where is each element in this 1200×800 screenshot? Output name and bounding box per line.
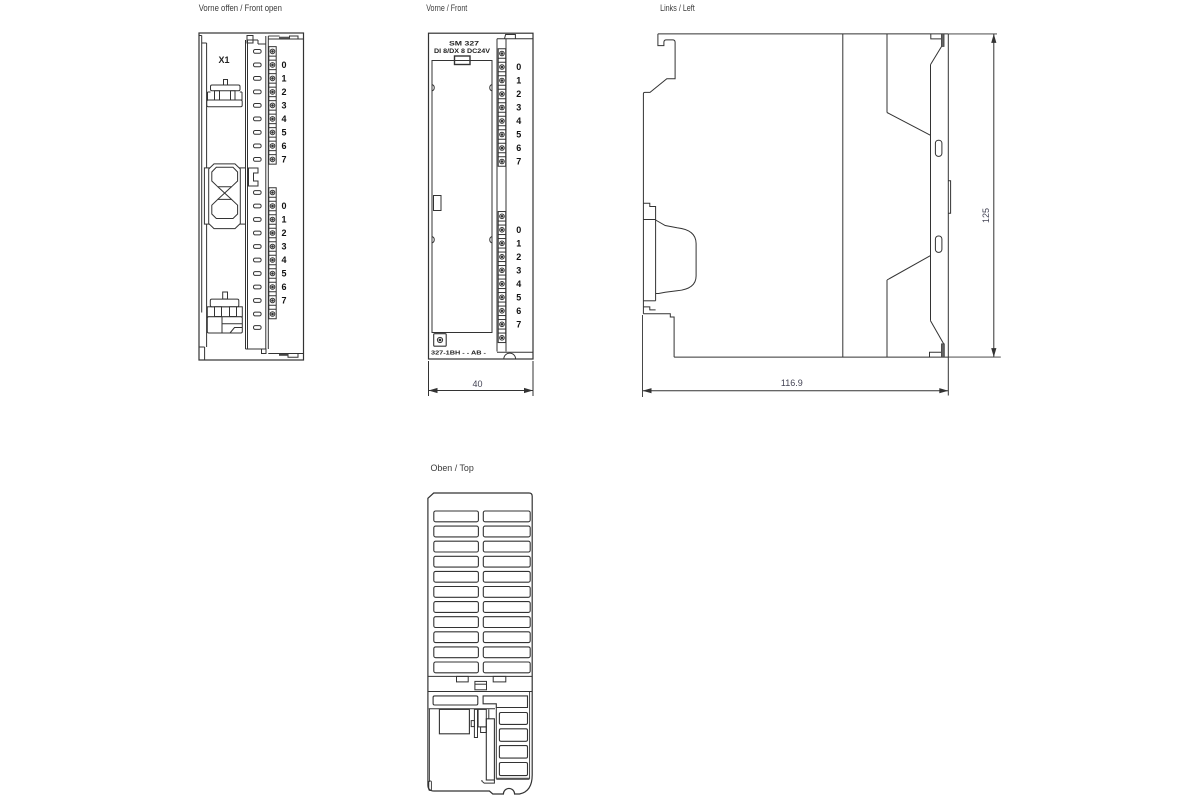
svg-text:0: 0 [281,201,286,211]
svg-text:4: 4 [281,114,286,124]
svg-text:0: 0 [516,62,521,72]
svg-text:6: 6 [281,141,286,151]
svg-text:7: 7 [516,320,521,330]
svg-text:3: 3 [516,103,521,113]
svg-text:4: 4 [281,255,286,265]
svg-text:3: 3 [281,101,286,111]
svg-text:Vorne / Front: Vorne / Front [426,3,467,13]
svg-text:116.9: 116.9 [781,378,803,388]
svg-text:6: 6 [516,143,521,153]
svg-text:6: 6 [281,282,286,292]
svg-text:0: 0 [281,60,286,70]
svg-text:7: 7 [281,296,286,306]
svg-text:125: 125 [981,208,991,223]
svg-text:2: 2 [516,89,521,99]
svg-text:327-1BH - - AB -: 327-1BH - - AB - [431,351,486,357]
svg-text:5: 5 [281,269,286,279]
svg-text:Oben / Top: Oben / Top [431,463,474,473]
svg-text:DI 8/DX 8 DC24V: DI 8/DX 8 DC24V [434,48,491,55]
svg-text:4: 4 [516,116,521,126]
svg-text:7: 7 [281,155,286,165]
svg-text:1: 1 [281,74,286,84]
svg-text:40: 40 [472,379,482,389]
svg-text:5: 5 [281,128,286,138]
svg-text:3: 3 [281,242,286,252]
svg-text:1: 1 [281,215,286,225]
svg-text:3: 3 [516,266,521,276]
svg-text:Links / Left: Links / Left [660,3,695,13]
svg-text:Vorne offen / Front open: Vorne offen / Front open [199,3,282,13]
svg-text:4: 4 [516,279,521,289]
svg-text:2: 2 [281,87,286,97]
svg-text:7: 7 [516,157,521,167]
svg-text:5: 5 [516,130,521,140]
svg-text:5: 5 [516,293,521,303]
svg-text:2: 2 [516,252,521,262]
svg-text:1: 1 [516,76,521,86]
svg-text:6: 6 [516,306,521,316]
svg-text:SM 327: SM 327 [449,41,480,48]
svg-text:1: 1 [516,239,521,249]
svg-text:0: 0 [516,225,521,235]
svg-text:X1: X1 [219,55,230,65]
svg-text:2: 2 [281,228,286,238]
